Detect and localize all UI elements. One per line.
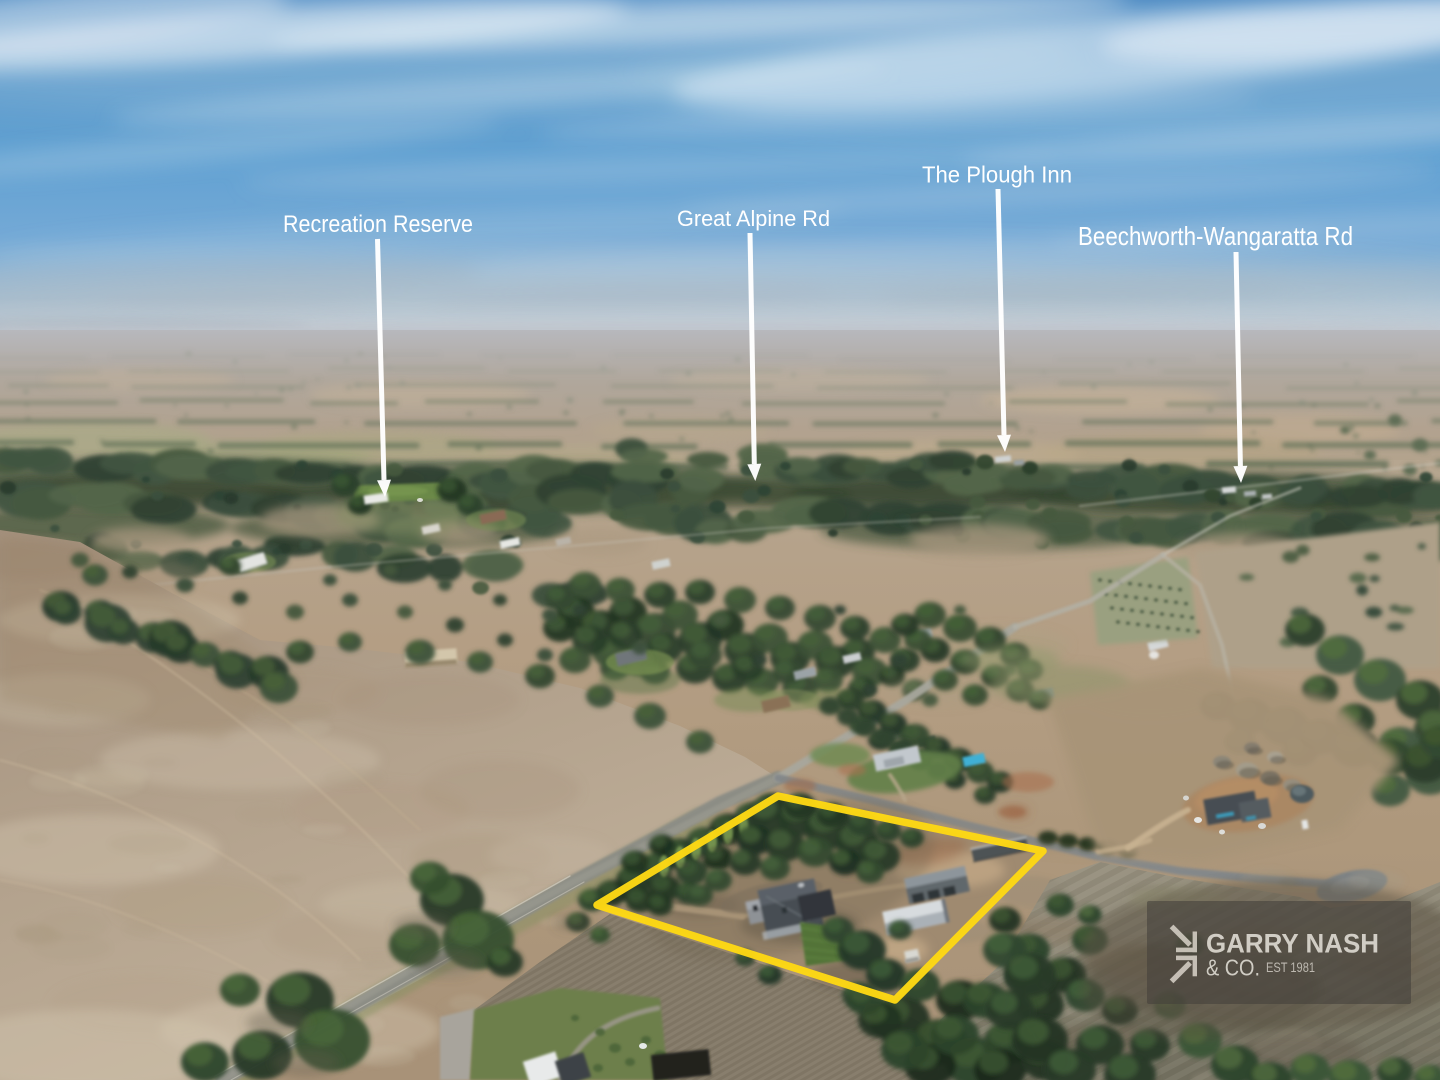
svg-text:EST 1981: EST 1981 [1266,960,1315,975]
svg-text:Beechworth-Wangaratta Rd: Beechworth-Wangaratta Rd [1078,221,1353,251]
svg-text:& CO.: & CO. [1206,955,1260,981]
svg-text:Recreation Reserve: Recreation Reserve [283,211,473,238]
svg-text:Great Alpine Rd: Great Alpine Rd [677,206,830,231]
svg-text:The Plough Inn: The Plough Inn [922,162,1072,188]
